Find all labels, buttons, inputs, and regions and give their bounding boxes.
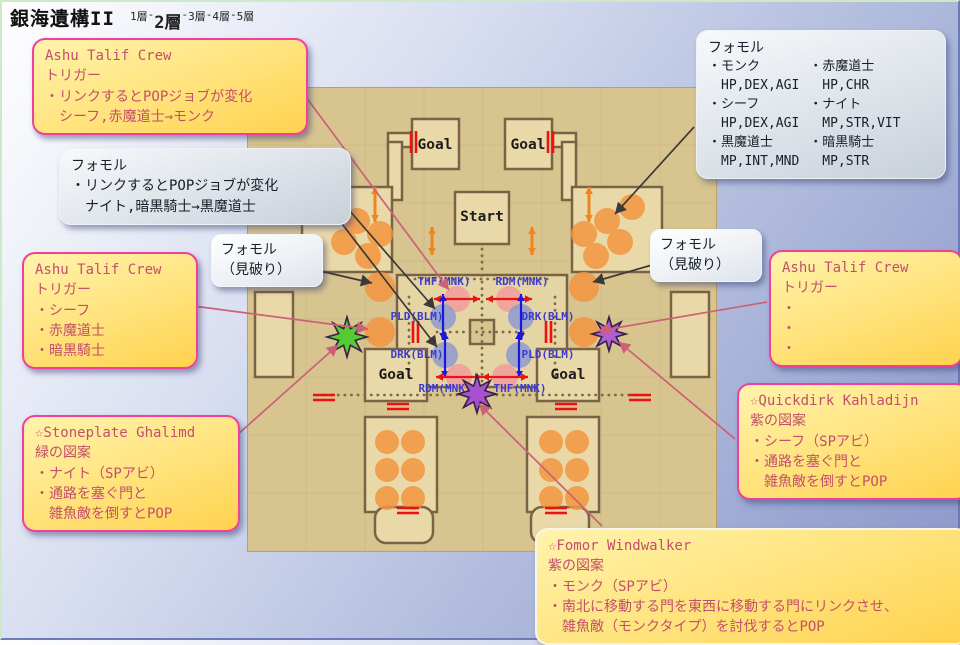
enemy-group-circle xyxy=(367,221,393,247)
callout-line: ・シーフ（SPアビ） xyxy=(750,432,956,452)
gate-job-label: THF(MNK) xyxy=(418,275,471,288)
callout-line: シーフ,赤魔道士→モンク xyxy=(45,107,295,127)
callout-line: ・赤魔道士 xyxy=(35,321,185,341)
enemy-group-circle xyxy=(583,243,609,269)
label-goal-top-right: Goal xyxy=(511,137,546,153)
job-stats: HP,CHR xyxy=(809,77,900,96)
job-name: ・モンク xyxy=(708,58,799,77)
callout-ashu-talif-right: Ashu Talif Crew トリガー ・ ・ ・ xyxy=(769,250,960,367)
callout-line: 紫の図案 xyxy=(750,411,956,431)
enemy-group-circle xyxy=(565,458,589,482)
enemy-group-circle xyxy=(355,243,381,269)
job-stats: MP,STR,VIT xyxy=(809,115,900,134)
job-name: ・ナイト xyxy=(809,96,900,115)
room-side-east xyxy=(671,292,709,377)
job-name: ・暗黒騎士 xyxy=(809,134,900,153)
enemy-group-circle xyxy=(565,486,589,510)
callout-fomor-link: フォモル ・リンクするとPOPジョブが変化 ナイト,暗黒騎士→黒魔道士 xyxy=(59,148,351,225)
gate-job-label: RDM(MNK) xyxy=(496,275,549,288)
label-goal-mid-right: Goal xyxy=(551,367,586,383)
enemy-group-circle xyxy=(375,430,399,454)
callout-line: ・シーフ xyxy=(35,301,185,321)
callout-line: ・通路を塞ぐ門と xyxy=(35,484,227,504)
callout-line: ・ xyxy=(782,319,950,339)
gate-job-label: DRK(BLM) xyxy=(391,348,444,361)
callout-title: Ashu Talif Crew xyxy=(35,260,185,280)
page-title: 銀海遺構II xyxy=(10,4,115,31)
job-stats: HP,DEX,AGI xyxy=(708,77,799,96)
page: { "title": "銀海遺構II", "floor_nav": { "sep… xyxy=(0,0,960,640)
enemy-group-circle xyxy=(569,272,599,302)
callout-fomor-stats: フォモル ・モンク HP,DEX,AGI ・シーフ HP,DEX,AGI ・黒魔… xyxy=(696,30,946,179)
gate-job-label: DRK(BLM) xyxy=(522,310,575,323)
floor-link-1[interactable]: 1層 xyxy=(130,10,148,23)
fomor-stats-column-right: ・赤魔道士 HP,CHR ・ナイト MP,STR,VIT ・暗黒騎士 MP,ST… xyxy=(809,58,900,171)
callout-line: ・モンク（SPアビ） xyxy=(548,577,956,597)
callout-fomor-miyaburi-right: フォモル （見破り） xyxy=(650,229,762,282)
callout-line: 雑魚敵を倒すとPOP xyxy=(35,504,227,524)
callout-line: （見破り） xyxy=(221,260,313,280)
callout-line: 緑の図案 xyxy=(35,443,227,463)
job-stats: MP,INT,MND xyxy=(708,153,799,172)
callout-line: （見破り） xyxy=(660,255,752,275)
label-start: Start xyxy=(460,209,504,225)
callout-line: ・南北に移動する門を東西に移動する門にリンクさせ、 xyxy=(548,597,956,617)
gate-job-label: PLD(BLM) xyxy=(522,348,575,361)
enemy-group-circle xyxy=(365,272,395,302)
enemy-group-circle xyxy=(375,486,399,510)
callout-ashu-talif-top-left: Ashu Talif Crew トリガー ・リンクするとPOPジョブが変化 シー… xyxy=(32,38,308,135)
callout-title: Ashu Talif Crew xyxy=(45,46,295,66)
floor-link-2-active[interactable]: 2層 xyxy=(154,13,181,33)
job-name: ・シーフ xyxy=(708,96,799,115)
callout-line: トリガー xyxy=(35,280,185,300)
floor-nav: 1層-2層-3層-4層-5層 xyxy=(130,8,254,33)
fomor-stats-column-left: ・モンク HP,DEX,AGI ・シーフ HP,DEX,AGI ・黒魔道士 MP… xyxy=(708,58,799,171)
job-name: ・赤魔道士 xyxy=(809,58,900,77)
callout-title: フォモル xyxy=(708,38,934,58)
callout-title: Ashu Talif Crew xyxy=(782,258,950,278)
floor-separator: - xyxy=(230,8,237,21)
job-stats: HP,DEX,AGI xyxy=(708,115,799,134)
callout-line: ☆Fomor Windwalker xyxy=(548,536,956,556)
callout-line: ・ナイト（SPアビ） xyxy=(35,464,227,484)
callout-line: ナイト,暗黒騎士→黒魔道士 xyxy=(71,197,339,217)
enemy-group-circle xyxy=(401,430,425,454)
callout-line: トリガー xyxy=(45,66,295,86)
enemy-group-circle xyxy=(607,229,633,255)
callout-line: ☆Stoneplate Ghalimd xyxy=(35,423,227,443)
callout-line: ☆Quickdirk Kahladijn xyxy=(750,391,956,411)
enemy-group-circle xyxy=(401,458,425,482)
callout-line: ・通路を塞ぐ門と xyxy=(750,452,956,472)
floor-link-5[interactable]: 5層 xyxy=(237,10,255,23)
enemy-group-circle xyxy=(565,430,589,454)
callout-line: 雑魚敵（モンクタイプ）を討伐するとPOP xyxy=(548,617,956,637)
gate-job-label: THF(MNK) xyxy=(494,382,547,395)
enemy-group-circle xyxy=(539,458,563,482)
room-side-west xyxy=(255,292,293,377)
callout-fomor-miyaburi-left: フォモル （見破り） xyxy=(211,234,323,287)
callout-line: 雑魚敵を倒すとPOP xyxy=(750,472,956,492)
callout-line: フォモル xyxy=(221,240,313,260)
green-pop-star xyxy=(327,317,367,357)
callout-line: 紫の図案 xyxy=(548,556,956,576)
callout-line: ・ xyxy=(782,339,950,359)
callout-line: ・暗黒騎士 xyxy=(35,341,185,361)
enemy-group-circle xyxy=(401,486,425,510)
callout-fomor-windwalker: ☆Fomor Windwalker 紫の図案 ・モンク（SPアビ） ・南北に移動… xyxy=(535,528,960,645)
callout-stoneplate-ghalimd: ☆Stoneplate Ghalimd 緑の図案 ・ナイト（SPアビ） ・通路を… xyxy=(22,415,240,532)
callout-line: フォモル xyxy=(71,156,339,176)
enemy-group-circle xyxy=(571,221,597,247)
label-goal-mid-left: Goal xyxy=(379,367,414,383)
callout-line: トリガー xyxy=(782,278,950,298)
floor-link-3[interactable]: 3層 xyxy=(188,10,206,23)
callout-line: ・リンクするとPOPジョブが変化 xyxy=(45,87,295,107)
job-name: ・黒魔道士 xyxy=(708,134,799,153)
callout-quickdirk-kahladijn: ☆Quickdirk Kahladijn 紫の図案 ・シーフ（SPアビ） ・通路… xyxy=(737,383,960,500)
gate-job-label: PLD(BLM) xyxy=(391,310,444,323)
enemy-group-circle xyxy=(539,486,563,510)
enemy-group-circle xyxy=(375,458,399,482)
callout-line: ・リンクするとPOPジョブが変化 xyxy=(71,176,339,196)
job-stats: MP,STR xyxy=(809,153,900,172)
callout-line: ・ xyxy=(782,299,950,319)
enemy-group-circle xyxy=(331,229,357,255)
enemy-group-circle xyxy=(539,430,563,454)
enemy-group-circle xyxy=(619,194,645,220)
purple-pop-star-south xyxy=(458,375,496,413)
label-goal-top-left: Goal xyxy=(418,137,453,153)
floor-link-4[interactable]: 4層 xyxy=(212,10,230,23)
purple-pop-star-east xyxy=(592,317,626,351)
callout-ashu-talif-left: Ashu Talif Crew トリガー ・シーフ ・赤魔道士 ・暗黒騎士 xyxy=(22,252,198,369)
callout-line: フォモル xyxy=(660,235,752,255)
fomor-stats-columns: ・モンク HP,DEX,AGI ・シーフ HP,DEX,AGI ・黒魔道士 MP… xyxy=(708,58,934,171)
